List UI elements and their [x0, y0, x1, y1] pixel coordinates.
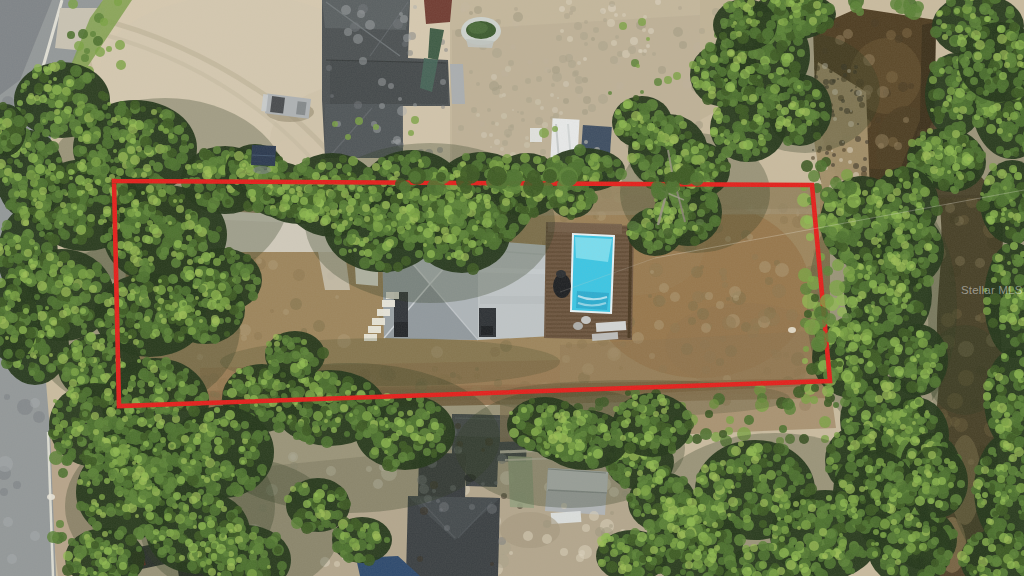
svg-text:Stellar MLS: Stellar MLS: [961, 284, 1023, 296]
